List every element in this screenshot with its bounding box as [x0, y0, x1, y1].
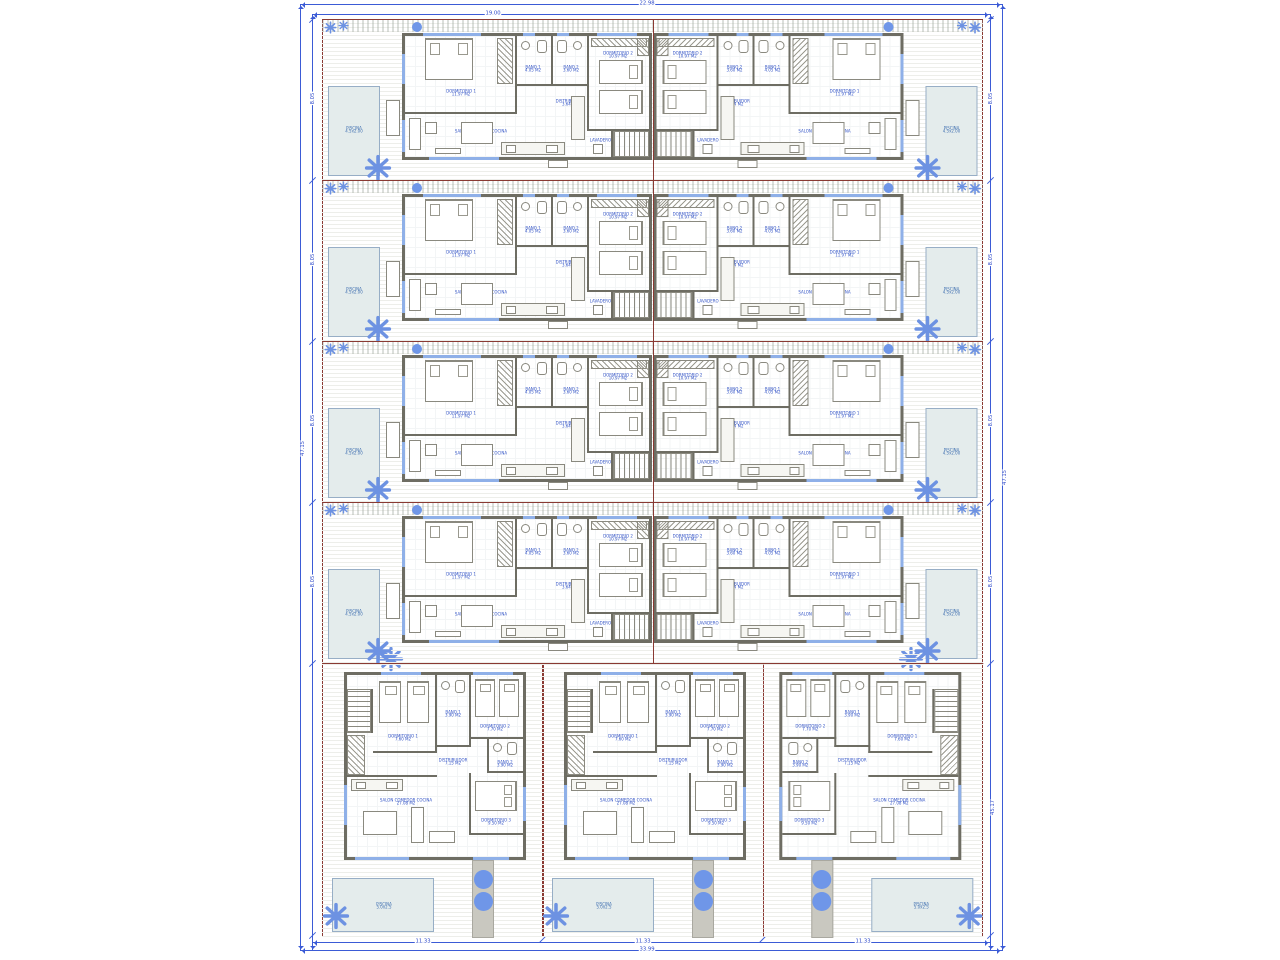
kitchen-appliance-column — [720, 257, 734, 301]
dim-top-inner: 19.00 — [485, 11, 502, 16]
sink — [723, 41, 732, 50]
armchair — [425, 122, 437, 134]
window-slider — [355, 857, 409, 860]
staircase — [613, 614, 649, 640]
shrub-icon — [968, 182, 981, 195]
room-label-bath1: BAÑO 14.05 M2 — [520, 549, 546, 556]
shrub-icon — [338, 503, 349, 514]
dining-table — [363, 811, 397, 835]
room-label-bath2: BAÑO 23.60 M2 — [721, 549, 747, 556]
dining-table — [461, 444, 493, 466]
window — [958, 785, 961, 825]
sofa — [411, 807, 424, 843]
window — [824, 194, 882, 197]
semi-detached-unit-mirrored: PISCINA 4.5x2.00 — [653, 181, 984, 342]
room-label-bath1: BAÑO 13.90 M2 — [660, 711, 686, 718]
toilet — [840, 680, 850, 693]
shrub-icon — [338, 181, 349, 192]
villa-parcel: DORMITORIO 17.60 M2 BAÑO 13.90 M2 DORMIT… — [542, 663, 762, 937]
room-label-bath1: BAÑO 14.05 M2 — [759, 66, 785, 73]
room-label-bedroom1: DORMITORIO 17.60 M2 — [383, 735, 423, 742]
wardrobe — [497, 521, 513, 567]
room-label-bath1: BAÑO 14.05 M2 — [759, 388, 785, 395]
kitchen-appliance-column — [720, 418, 734, 462]
window — [792, 672, 832, 675]
washing-machine — [702, 466, 712, 476]
tv-bench — [435, 309, 461, 315]
room-label-bath1: BAÑO 14.05 M2 — [520, 388, 546, 395]
bush-icon — [883, 22, 893, 32]
unit-building: DORMITORIO 111.97 M2 BAÑO 14.05 M2 BAÑO … — [402, 355, 652, 482]
armchair — [868, 122, 880, 134]
staircase — [613, 131, 649, 157]
single-bed — [662, 412, 706, 436]
villa-building: DORMITORIO 17.60 M2 BAÑO 13.90 M2 DORMIT… — [344, 672, 526, 860]
sofa — [409, 118, 421, 150]
toilet — [537, 40, 547, 53]
dim-top-total: 22.98 — [639, 1, 656, 6]
window — [900, 376, 903, 406]
room-label-bath2: BAÑO 23.60 M2 — [721, 227, 747, 234]
room-label-bedroom3: DORMITORIO 39.50 M2 — [478, 819, 514, 826]
room-label-living: SALON COMEDOR COCINA27.08 M2 — [590, 799, 663, 806]
wardrobe — [497, 199, 513, 245]
staircase — [656, 453, 692, 479]
toilet — [738, 40, 748, 53]
unit-building: DORMITORIO 111.97 M2 BAÑO 14.05 M2 BAÑO … — [653, 194, 903, 321]
window — [900, 603, 903, 635]
window — [597, 194, 637, 197]
single-bed — [786, 679, 806, 717]
toilet — [758, 201, 768, 214]
window-slider — [429, 157, 499, 160]
closet — [656, 360, 668, 378]
terrace-step — [386, 100, 400, 136]
double-bed — [475, 781, 517, 811]
window — [668, 516, 708, 519]
window — [736, 355, 748, 358]
window — [557, 516, 569, 519]
bush-icon — [474, 892, 493, 911]
dining-table — [461, 122, 493, 144]
window — [344, 785, 347, 825]
window — [523, 355, 535, 358]
shrub-icon — [956, 20, 967, 31]
window-slider — [806, 479, 876, 482]
sink — [713, 743, 722, 752]
window-slider — [806, 318, 876, 321]
palm-tree-icon — [913, 315, 941, 343]
terrace-step — [386, 422, 400, 458]
window — [381, 672, 421, 675]
window — [523, 516, 535, 519]
bush-icon — [412, 183, 422, 193]
staircase — [656, 614, 692, 640]
kitchen-counter — [501, 303, 565, 316]
single-bed — [599, 681, 621, 723]
toilet — [788, 742, 798, 755]
room-label-bath1: BAÑO 13.90 M2 — [440, 711, 466, 718]
room-label-bedroom2: DORMITORIO 210.97 M2 — [668, 374, 706, 381]
closet — [347, 735, 365, 775]
room-label-living: SALON COMEDOR COCINA27.08 M2 — [370, 799, 443, 806]
window — [770, 355, 782, 358]
dining-table — [583, 811, 617, 835]
kitchen-appliance-column — [720, 96, 734, 140]
shrub-icon — [324, 21, 337, 34]
window — [402, 54, 405, 84]
dining-table — [908, 811, 942, 835]
dim-villa-width: 11.33 — [635, 939, 652, 944]
room-label-bath1: BAÑO 14.05 M2 — [520, 227, 546, 234]
single-bed — [662, 251, 706, 275]
room-label-laundry: LAVADERO — [697, 300, 715, 303]
sofa — [409, 279, 421, 311]
window — [423, 33, 481, 36]
room-label-hall: DISTRIBUIDOR7.15 M2 — [438, 759, 467, 766]
room-label-bath2: BAÑO 23.60 M2 — [558, 388, 584, 395]
single-bed — [599, 90, 643, 114]
closet — [656, 38, 668, 56]
toilet — [557, 201, 567, 214]
dim-row-height: 8.05 — [310, 414, 315, 427]
dim-row-height: 8.05 — [310, 253, 315, 266]
window — [597, 355, 637, 358]
toilet — [758, 362, 768, 375]
staircase — [613, 453, 649, 479]
room-label-laundry: LAVADERO — [590, 622, 608, 625]
room-label-bath2: BAÑO 23.90 M2 — [712, 761, 738, 768]
armchair — [868, 283, 880, 295]
sink — [775, 41, 784, 50]
pool-size-label: 4.5x2.00 — [324, 291, 383, 294]
armchair — [425, 605, 437, 617]
window — [743, 787, 746, 821]
window — [900, 215, 903, 245]
window — [884, 672, 924, 675]
window — [423, 194, 481, 197]
room-label-bath2: BAÑO 23.60 M2 — [721, 66, 747, 73]
washing-machine — [702, 305, 712, 315]
wardrobe — [497, 38, 513, 84]
toilet — [557, 523, 567, 536]
entry-step — [737, 160, 757, 168]
kitchen-counter — [740, 303, 804, 316]
room-label-laundry: LAVADERO — [697, 139, 715, 142]
single-bed — [599, 382, 643, 406]
sink — [573, 41, 582, 50]
single-bed — [599, 221, 643, 245]
room-label-bedroom1: DORMITORIO 17.60 M2 — [603, 735, 643, 742]
room-label-hall: DISTRIBUIDOR7.15 M2 — [837, 759, 866, 766]
window-slider — [806, 640, 876, 643]
window — [597, 33, 637, 36]
room-label-bath2: BAÑO 23.90 M2 — [492, 761, 518, 768]
window — [601, 672, 641, 675]
single-bed — [662, 382, 706, 406]
bush-icon — [883, 505, 893, 515]
dim-villa-width: 11.33 — [855, 939, 872, 944]
sofa — [884, 440, 896, 472]
sofa — [881, 807, 894, 843]
armchair — [429, 831, 455, 843]
window — [523, 33, 535, 36]
single-bed — [662, 60, 706, 84]
room-label-bath2: BAÑO 23.60 M2 — [721, 388, 747, 395]
room-label-bedroom1: DORMITORIO 111.97 M2 — [811, 251, 877, 258]
room-label-bedroom2: DORMITORIO 27.70 M2 — [477, 725, 514, 732]
window — [824, 33, 882, 36]
dim-line-top-inner: 19.00 — [312, 14, 990, 15]
single-bed — [662, 221, 706, 245]
semi-detached-unit-mirrored: PISCINA 4.5x2.00 — [653, 503, 984, 664]
semi-detached-unit: PISCINA 4.5x2.00 — [322, 342, 653, 503]
staircase — [656, 131, 692, 157]
armchair — [850, 831, 876, 843]
closet — [656, 521, 668, 539]
room-label-bath2: BAÑO 23.60 M2 — [558, 66, 584, 73]
dim-row-height: 8.05 — [310, 575, 315, 588]
room-label-bedroom3: DORMITORIO 39.50 M2 — [791, 819, 827, 826]
sink — [723, 363, 732, 372]
sofa — [884, 279, 896, 311]
terrace-step — [386, 583, 400, 619]
dining-table — [812, 605, 844, 627]
dim-line-right-outer: 47.15 — [1002, 4, 1003, 951]
room-label-laundry: LAVADERO — [590, 139, 608, 142]
unit-building: DORMITORIO 111.97 M2 BAÑO 14.05 M2 BAÑO … — [402, 194, 652, 321]
window — [402, 376, 405, 406]
dim-line-bottom-segments: 11.33 11.33 11.33 — [312, 942, 990, 943]
unit-building: DORMITORIO 111.97 M2 BAÑO 14.05 M2 BAÑO … — [653, 33, 903, 160]
window — [900, 54, 903, 84]
dim-line-left-outer: 47.15 — [300, 4, 301, 951]
dim-right-inner: 45.17 — [990, 799, 995, 816]
toilet — [758, 523, 768, 536]
sink — [573, 363, 582, 372]
shrub-icon — [968, 21, 981, 34]
row-parcel: PISCINA 4.5x2.00 — [322, 502, 983, 663]
window — [557, 355, 569, 358]
double-bed — [425, 199, 473, 241]
toilet — [557, 40, 567, 53]
shrub-icon — [956, 181, 967, 192]
sink — [521, 363, 530, 372]
window — [557, 33, 569, 36]
shrub-icon — [956, 342, 967, 353]
single-bed — [904, 681, 926, 723]
pool-size-label: 5.0x2.5 — [575, 906, 634, 909]
dim-line-right-inner: 8.05 8.05 8.05 8.05 45.17 — [990, 14, 991, 951]
washing-machine — [593, 627, 603, 637]
dining-table — [461, 283, 493, 305]
sink — [573, 524, 582, 533]
window — [402, 442, 405, 474]
window — [900, 442, 903, 474]
kitchen-counter — [740, 142, 804, 155]
dim-line-left-inner: 8.05 8.05 8.05 8.05 — [312, 14, 313, 951]
shrub-icon — [324, 343, 337, 356]
window — [770, 33, 782, 36]
window — [402, 215, 405, 245]
shrub-icon — [968, 343, 981, 356]
double-bed — [832, 38, 880, 80]
room-label-bath2: BAÑO 23.90 M2 — [787, 761, 813, 768]
sink — [441, 681, 450, 690]
room-label-bedroom2: DORMITORIO 210.97 M2 — [599, 52, 637, 59]
kitchen-appliance-column — [720, 579, 734, 623]
washing-machine — [593, 305, 603, 315]
kitchen-appliance-column — [571, 579, 585, 623]
single-bed — [810, 679, 830, 717]
armchair — [868, 444, 880, 456]
tv-bench — [844, 470, 870, 476]
sofa — [884, 601, 896, 633]
staircase — [613, 292, 649, 318]
sink — [855, 681, 864, 690]
wardrobe — [792, 360, 808, 406]
window — [557, 194, 569, 197]
armchair — [649, 831, 675, 843]
window-slider — [429, 318, 499, 321]
armchair — [425, 444, 437, 456]
room-label-laundry: LAVADERO — [590, 461, 608, 464]
tv-bench — [844, 309, 870, 315]
toilet — [455, 680, 465, 693]
bush-icon — [883, 183, 893, 193]
double-bed — [832, 199, 880, 241]
room-label-bedroom2: DORMITORIO 210.97 M2 — [668, 535, 706, 542]
armchair — [868, 605, 880, 617]
bush-icon — [812, 870, 831, 889]
room-label-bath1: BAÑO 14.05 M2 — [520, 66, 546, 73]
toilet — [727, 742, 737, 755]
kitchen-counter — [351, 779, 403, 791]
single-bed — [876, 681, 898, 723]
room-label-bath2: BAÑO 23.60 M2 — [558, 549, 584, 556]
window — [564, 785, 567, 825]
room-label-bedroom1: DORMITORIO 111.97 M2 — [811, 90, 877, 97]
closet — [567, 735, 585, 775]
staircase — [347, 689, 371, 733]
unit-building: DORMITORIO 111.97 M2 BAÑO 14.05 M2 BAÑO … — [653, 355, 903, 482]
bush-icon — [412, 22, 422, 32]
palm-tree-icon — [542, 902, 570, 930]
toilet — [738, 201, 748, 214]
pool-size-label: 4.5x2.00 — [921, 613, 980, 616]
palm-tree-icon — [955, 902, 983, 930]
window — [900, 120, 903, 152]
window — [668, 355, 708, 358]
kitchen-counter — [902, 779, 954, 791]
palm-tree-icon — [913, 476, 941, 504]
room-label-bedroom1: DORMITORIO 17.60 M2 — [882, 735, 922, 742]
window — [736, 33, 748, 36]
toilet — [557, 362, 567, 375]
entry-step — [737, 643, 757, 651]
sink — [803, 743, 812, 752]
window — [523, 787, 526, 821]
room-label-bath2: BAÑO 23.60 M2 — [558, 227, 584, 234]
window — [824, 516, 882, 519]
palm-tree-icon — [913, 637, 941, 665]
staircase — [656, 292, 692, 318]
row-parcel: PISCINA 4.5x2.00 — [322, 180, 983, 341]
row-parcel: PISCINA 4.5x2.00 — [322, 341, 983, 502]
dim-right-total: 47.15 — [1002, 469, 1007, 486]
single-bed — [599, 573, 643, 597]
washing-machine — [702, 144, 712, 154]
single-bed — [719, 679, 739, 717]
unit-building: DORMITORIO 111.97 M2 BAÑO 14.05 M2 BAÑO … — [402, 33, 652, 160]
pool-size-label: 4.5x2.00 — [324, 613, 383, 616]
semi-detached-unit-mirrored: PISCINA 4.5x2.00 — [653, 342, 984, 503]
closet — [637, 521, 649, 539]
pool-size-label: 4.5x2.00 — [921, 291, 980, 294]
semi-detached-unit: PISCINA 4.5x2.00 — [322, 503, 653, 664]
room-label-laundry: LAVADERO — [697, 622, 715, 625]
single-bed — [599, 251, 643, 275]
villa-building: DORMITORIO 17.60 M2 BAÑO 13.90 M2 DORMIT… — [564, 672, 746, 860]
dim-line-bottom-total: 33.99 — [300, 950, 1002, 951]
washing-machine — [593, 466, 603, 476]
tv-bench — [844, 148, 870, 154]
double-bed — [695, 781, 737, 811]
terrace-step — [386, 261, 400, 297]
single-bed — [407, 681, 429, 723]
toilet — [537, 201, 547, 214]
window — [770, 194, 782, 197]
kitchen-counter — [571, 779, 623, 791]
window-slider — [806, 157, 876, 160]
room-label-bath1: BAÑO 13.90 M2 — [839, 711, 865, 718]
tv-bench — [435, 631, 461, 637]
entry-step — [737, 482, 757, 490]
room-label-bedroom2: DORMITORIO 210.97 M2 — [668, 52, 706, 59]
dim-row-height: 8.05 — [988, 92, 993, 105]
closet — [637, 38, 649, 56]
sink — [521, 41, 530, 50]
room-label-bedroom2: DORMITORIO 210.97 M2 — [599, 535, 637, 542]
bush-icon — [474, 870, 493, 889]
shrub-icon — [324, 182, 337, 195]
site-plan-sheet: 22.98 19.00 47.15 8.05 8.05 8.05 8.05 8.… — [0, 0, 1280, 960]
washing-machine — [702, 627, 712, 637]
toilet — [507, 742, 517, 755]
unit-building: DORMITORIO 111.97 M2 BAÑO 14.05 M2 BAÑO … — [653, 516, 903, 643]
palm-tree-icon — [364, 637, 392, 665]
closet — [637, 360, 649, 378]
dining-table — [812, 283, 844, 305]
toilet — [537, 362, 547, 375]
closet — [940, 735, 958, 775]
villa-building: DORMITORIO 17.60 M2 BAÑO 13.90 M2 DORMIT… — [779, 672, 961, 860]
terrace-step — [905, 422, 919, 458]
dining-table — [812, 122, 844, 144]
kitchen-counter — [501, 625, 565, 638]
single-bed — [475, 679, 495, 717]
pool-size-label: 4.5x2.00 — [921, 452, 980, 455]
window-slider — [575, 857, 629, 860]
sink — [521, 524, 530, 533]
entry-step — [737, 321, 757, 329]
room-label-bedroom1: DORMITORIO 111.97 M2 — [428, 412, 494, 419]
window — [736, 194, 748, 197]
semi-detached-unit: PISCINA 4.5x2.00 — [322, 20, 653, 181]
toilet — [738, 523, 748, 536]
palm-tree-icon — [322, 902, 350, 930]
toilet — [675, 680, 685, 693]
